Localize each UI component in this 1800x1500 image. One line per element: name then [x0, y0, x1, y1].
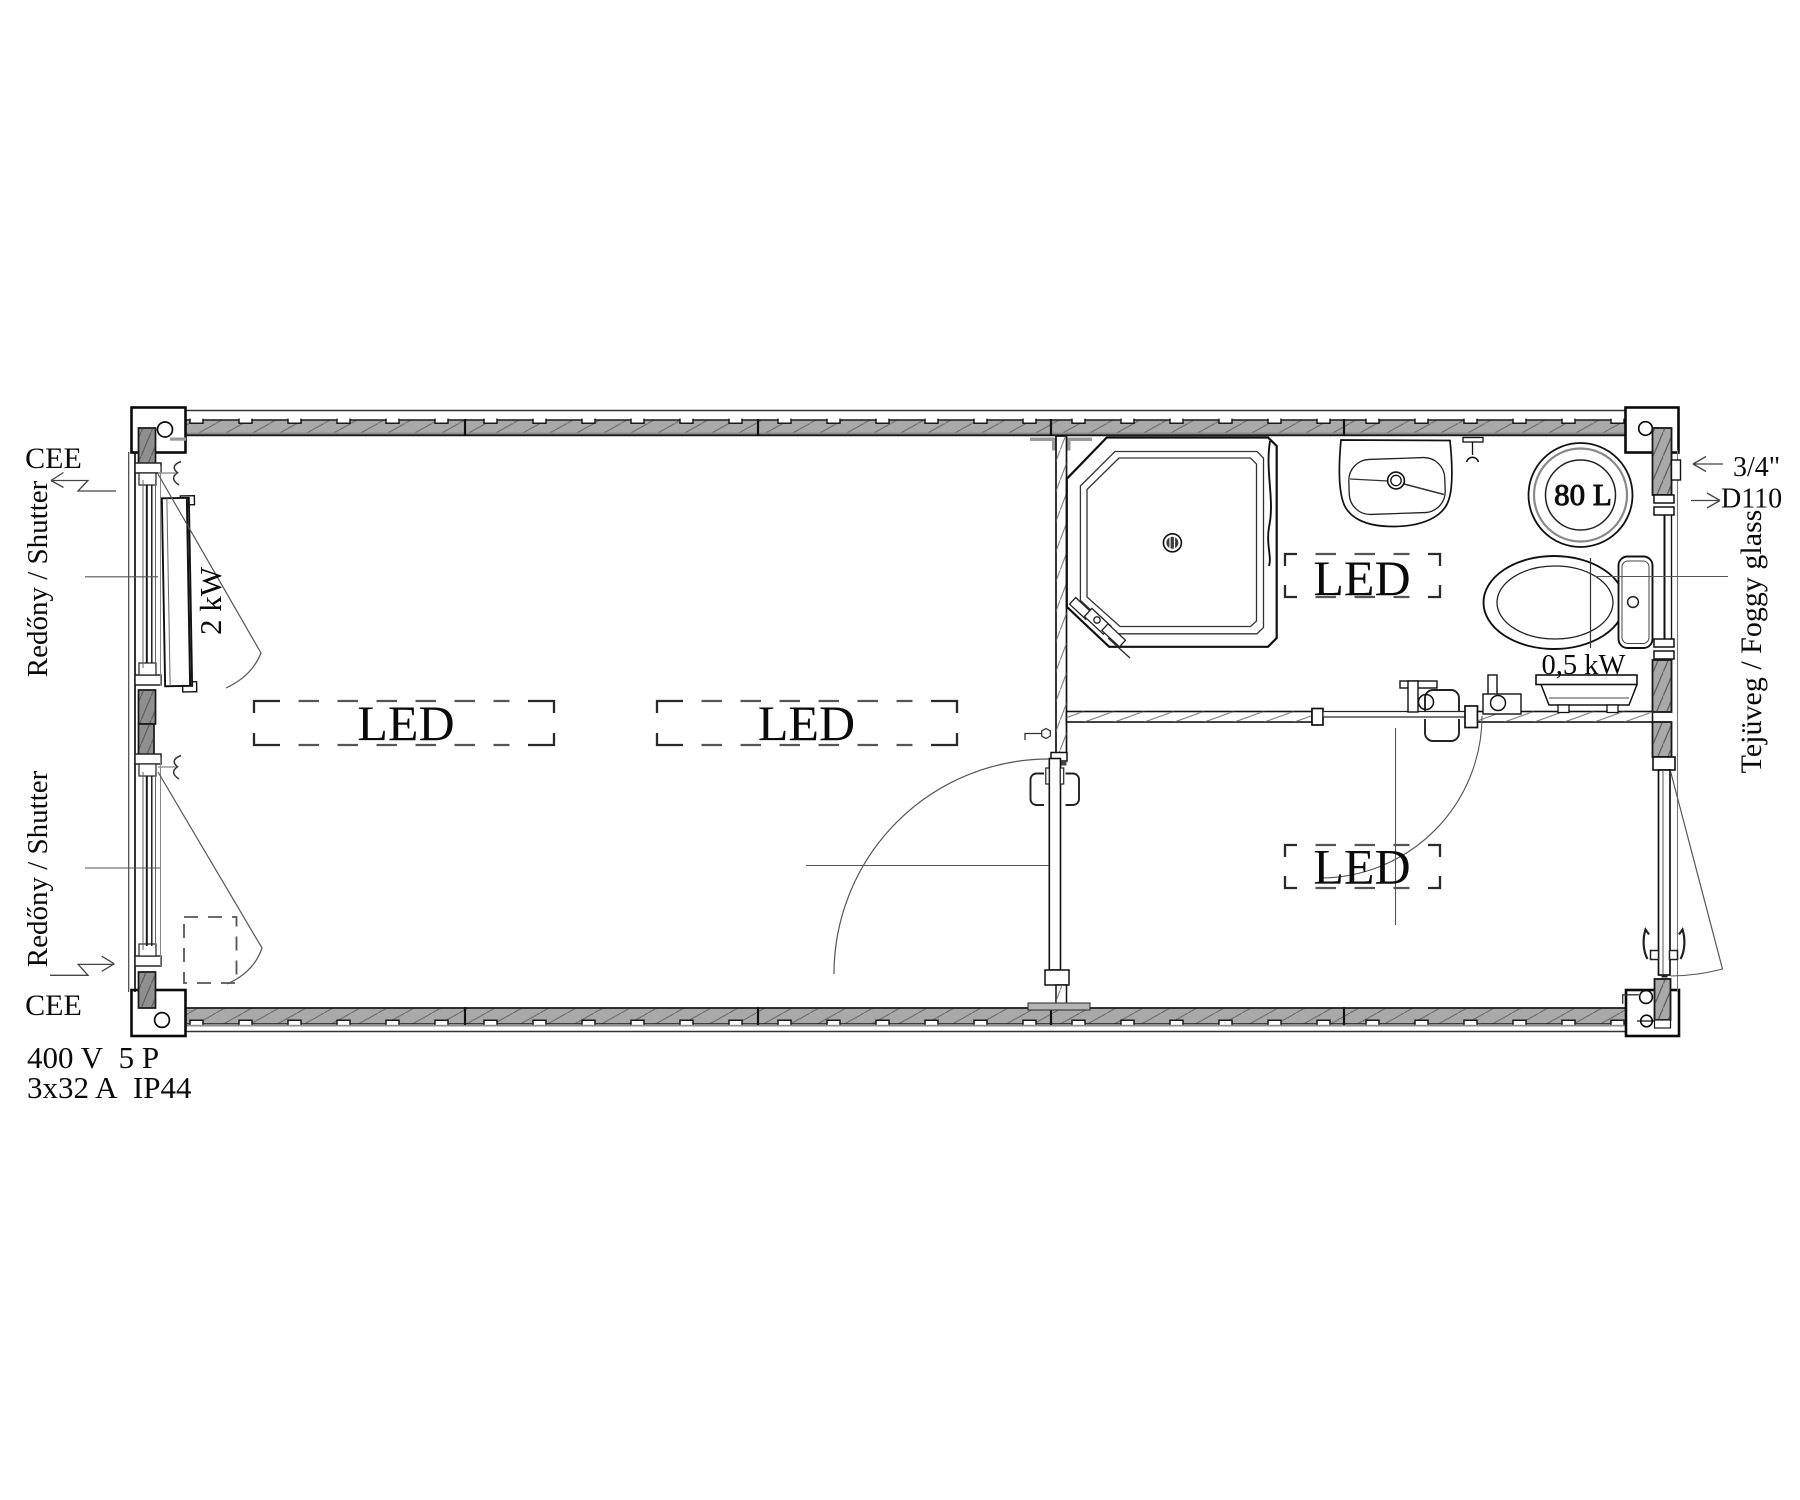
svg-text:Redőny / Shutter: Redőny / Shutter [22, 480, 54, 677]
svg-text:3x32 A IP44: 3x32 A IP44 [27, 1070, 192, 1105]
svg-text:CEE: CEE [25, 442, 82, 475]
svg-text:LED: LED [758, 695, 855, 751]
svg-text:3/4": 3/4" [1733, 452, 1780, 483]
svg-text:0,5 kW: 0,5 kW [1542, 650, 1626, 681]
svg-text:CEE: CEE [25, 989, 82, 1022]
svg-text:LED: LED [357, 695, 454, 751]
svg-text:LED: LED [1313, 550, 1410, 606]
svg-text:Redőny / Shutter: Redőny / Shutter [22, 770, 54, 967]
svg-text:80 L: 80 L [1554, 477, 1612, 512]
svg-text:LED: LED [1313, 839, 1410, 895]
svg-text:Tejüveg / Foggy glass: Tejüveg / Foggy glass [1735, 510, 1768, 774]
svg-text:2 kW: 2 kW [193, 566, 228, 635]
